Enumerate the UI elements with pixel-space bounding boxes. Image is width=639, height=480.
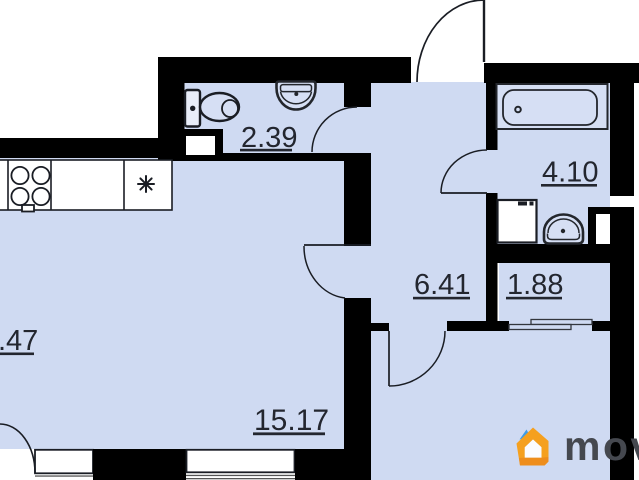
svg-text:6.41: 6.41 [414, 269, 470, 301]
svg-text:15.17: 15.17 [254, 404, 329, 437]
svg-text:.47: .47 [0, 325, 38, 357]
svg-text:mov: mov [564, 423, 639, 469]
svg-text:1.88: 1.88 [507, 269, 563, 301]
svg-text:4.10: 4.10 [542, 157, 598, 189]
